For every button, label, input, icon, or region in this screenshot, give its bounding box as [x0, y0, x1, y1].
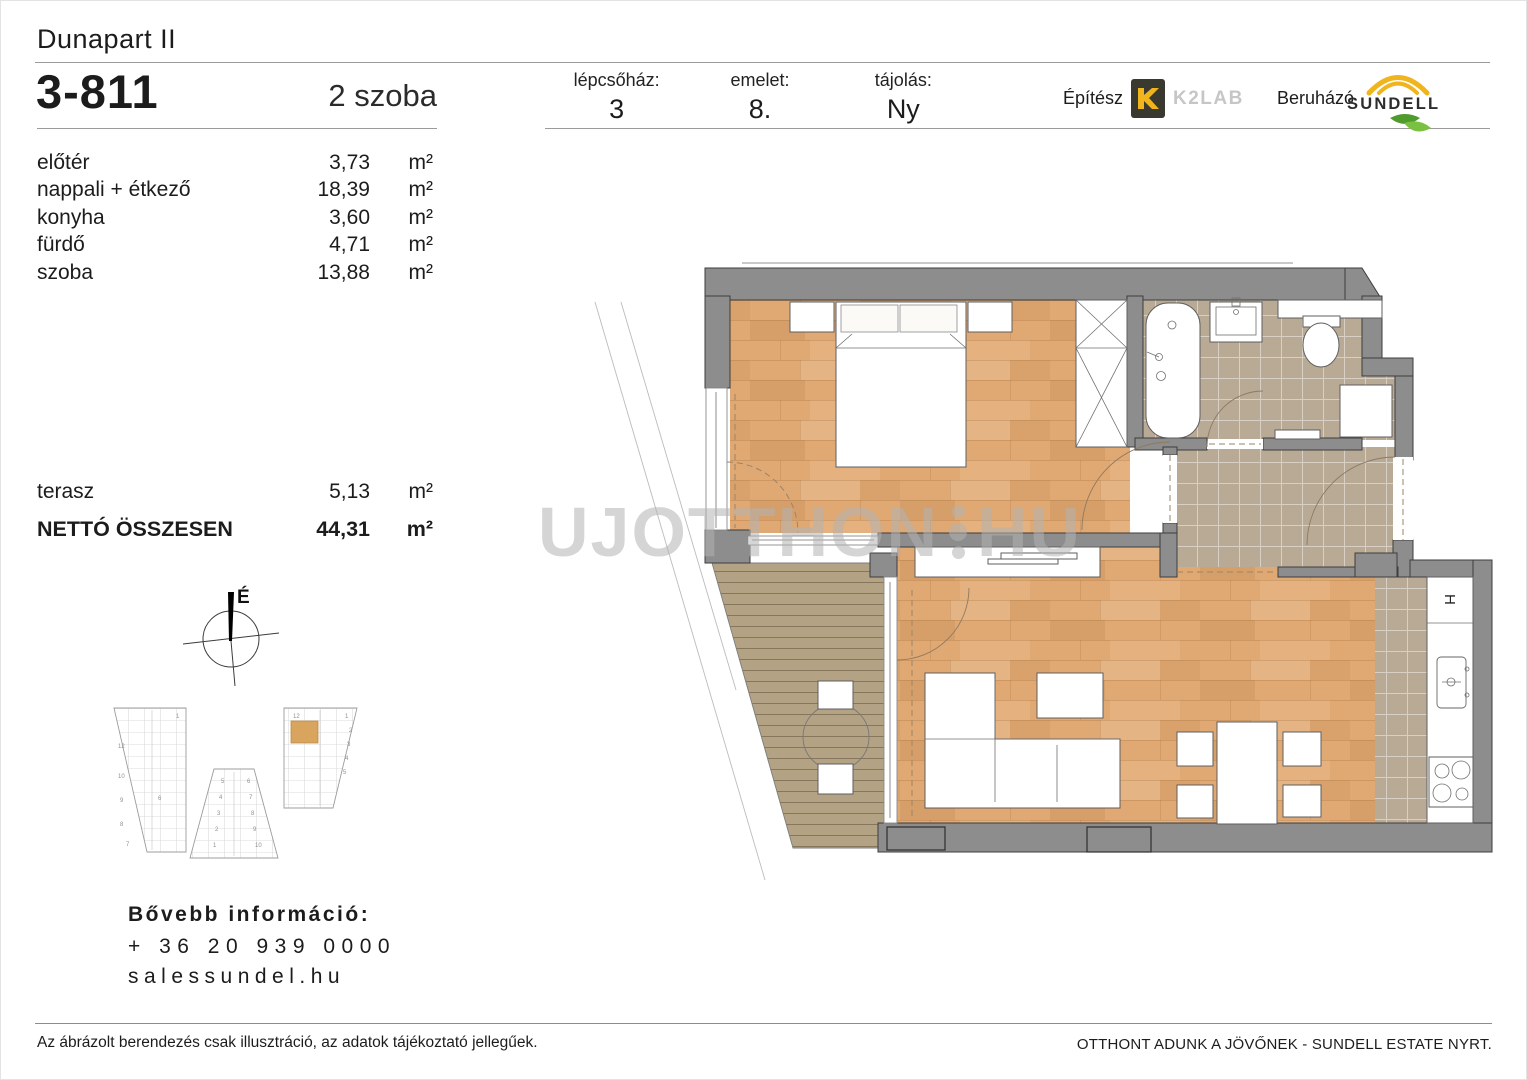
dining-chair	[1283, 785, 1321, 817]
terrace-deck	[712, 563, 893, 848]
pillow	[900, 305, 957, 332]
bedroom-furniture	[790, 300, 1127, 467]
bathroom-bench	[1275, 430, 1320, 439]
north-label: É	[237, 586, 250, 608]
tv	[988, 559, 1058, 564]
datasheet-page: Dunapart II 3-811 2 szoba előtér 3,73 m²…	[0, 0, 1527, 1080]
nightstand	[968, 302, 1012, 332]
coffee-table	[1037, 673, 1103, 718]
bathroom-shelf	[1278, 300, 1382, 318]
kitchen-floor	[1375, 577, 1427, 823]
terrace-chair	[818, 764, 853, 794]
bedroom-balcony-window	[706, 388, 727, 530]
terrace-chair	[818, 681, 853, 709]
nightstand	[790, 302, 834, 332]
pillow	[841, 305, 898, 332]
svg-text:12: 12	[118, 744, 125, 750]
svg-text:9: 9	[120, 798, 124, 804]
svg-text:12: 12	[293, 714, 300, 720]
fridge-label: H	[1441, 594, 1458, 605]
washing-machine	[1340, 385, 1392, 437]
building-key-plan: 112109876 56473829110 1212345	[114, 708, 357, 858]
hall-floor	[1163, 447, 1413, 567]
living-balcony-door	[884, 577, 897, 823]
svg-text:10: 10	[255, 843, 262, 849]
kitchen-fixtures: H	[1427, 577, 1473, 823]
tv	[1001, 553, 1077, 559]
dining-chair	[1177, 732, 1213, 766]
svg-text:4: 4	[345, 756, 349, 762]
toilet	[1303, 316, 1340, 367]
floor-plan: H	[0, 0, 1527, 1080]
bedroom-terrace-door	[748, 536, 878, 545]
dining-chair	[1177, 785, 1213, 818]
svg-text:8: 8	[120, 822, 124, 828]
bathtub	[1146, 303, 1200, 438]
dining-table	[1217, 722, 1277, 824]
compass-needle-icon	[228, 592, 234, 641]
kitchen-sink	[1437, 657, 1466, 708]
svg-text:10: 10	[118, 774, 125, 780]
svg-text:7: 7	[126, 842, 130, 848]
north-compass: É	[183, 586, 279, 686]
sink	[1210, 302, 1262, 342]
svg-text:3: 3	[347, 742, 351, 748]
wardrobe	[1076, 300, 1127, 447]
svg-text:5: 5	[343, 770, 347, 776]
dining-chair	[1283, 732, 1321, 766]
keyplan-unit-highlight	[291, 721, 318, 743]
cooktop	[1429, 757, 1473, 807]
